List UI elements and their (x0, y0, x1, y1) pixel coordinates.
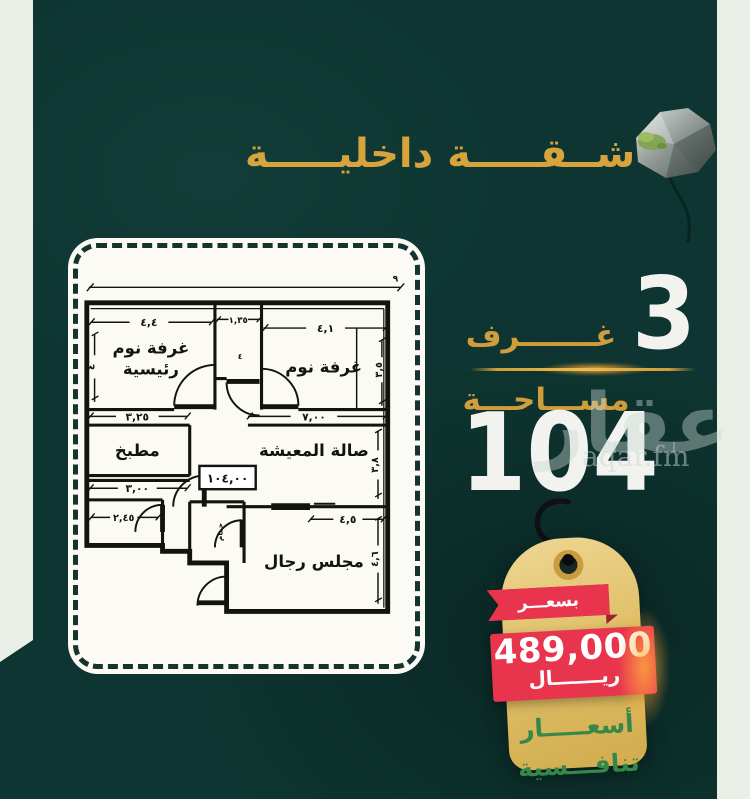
room-kitchen: مطبخ (115, 441, 160, 461)
room-majlis: مجلس رجال (264, 552, 364, 571)
dim-bath2-top: ٢,٤٥ (113, 513, 135, 524)
poster-canvas: شــقـــــة داخليـــــة ٩ (0, 0, 750, 799)
room-living: صالة المعيشة (259, 441, 369, 460)
dim-majlis-top: ٤,٥ (339, 513, 356, 526)
dim-overall: ٩ (393, 274, 399, 284)
rooms-count: 3 (632, 264, 715, 364)
page-title: شــقـــــة داخليـــــة (240, 126, 640, 182)
dim-bath-top: ١,٣٥ (229, 316, 248, 326)
room-bath: حمام (216, 523, 225, 541)
dim-kitchen-top: ٣,٢٥ (126, 410, 150, 423)
gold-divider (470, 368, 696, 371)
dim-majlis-right: ٤,٦ (370, 551, 381, 567)
rooms-label: غـــــــرف (455, 318, 627, 354)
dim-master-left: ٤ (85, 364, 98, 371)
dim-living-right: ٣,٨ (370, 457, 381, 473)
dim-bedroom-right: ٣,٥ (374, 362, 385, 378)
floorplan-card: ٩ ٤,٤ ١,٣٥ ٤,١ ٣,٢٥ ٧,٠٠ ٣,٠٠ ٢,٤٥ (68, 238, 425, 674)
room-bedroom: غرفة نوم (285, 358, 362, 378)
dim-bedroom-top: ٤,١ (317, 322, 334, 335)
tag-glow (608, 584, 680, 752)
price-tag: بسعـــر 489,000 ريـــــــال أسعـــــار ت… (480, 496, 670, 791)
dim-living-top: ٧,٠٠ (302, 410, 326, 423)
room-master-line1: غرفة نوم (113, 338, 190, 358)
floorplan-drawing: ٩ ٤,٤ ١,٣٥ ٤,١ ٣,٢٥ ٧,٠٠ ٣,٠٠ ٢,٤٥ (81, 264, 411, 628)
watermark-latin: aqar.fm (582, 440, 732, 473)
dim-master-top: ٤,٤ (140, 316, 157, 329)
rock-icon (624, 104, 720, 254)
dim-kitchen-bottom: ٣,٠٠ (126, 482, 150, 495)
price-ribbon: بسعـــر (487, 584, 610, 621)
dim-door: ٤ (238, 352, 243, 361)
room-master-line2: رئيسية (123, 360, 179, 379)
area-box-value: ١٠٤,٠٠ (207, 471, 249, 485)
